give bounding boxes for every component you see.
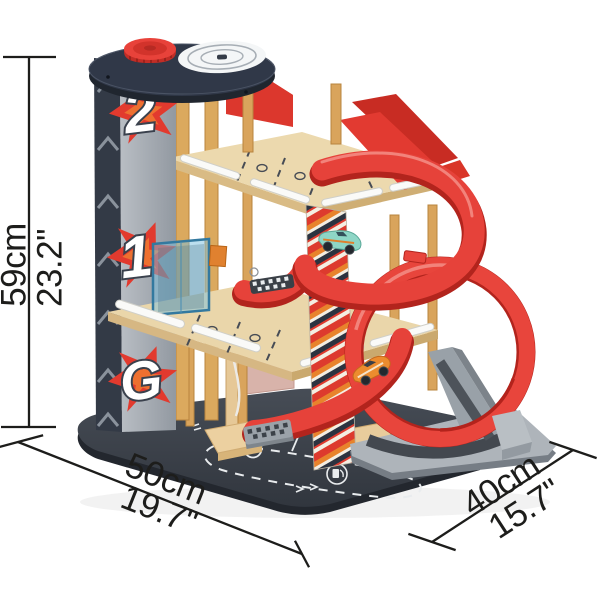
elevator-knob — [124, 38, 176, 63]
height-cm-label: 59cm — [0, 223, 34, 307]
loop-top-connector — [403, 251, 426, 264]
cap-screw — [244, 90, 248, 94]
helipad-center-mark — [217, 54, 227, 59]
ground-level-letter: G — [116, 349, 165, 414]
roof-cap — [89, 38, 275, 103]
toy-garage-scene: P — [0, 0, 600, 600]
elevator-shaft — [153, 239, 209, 315]
cap-screw — [106, 75, 110, 79]
orange-box — [209, 245, 226, 266]
product-image: P — [0, 0, 600, 600]
height-in-label: 23.2" — [31, 229, 70, 307]
